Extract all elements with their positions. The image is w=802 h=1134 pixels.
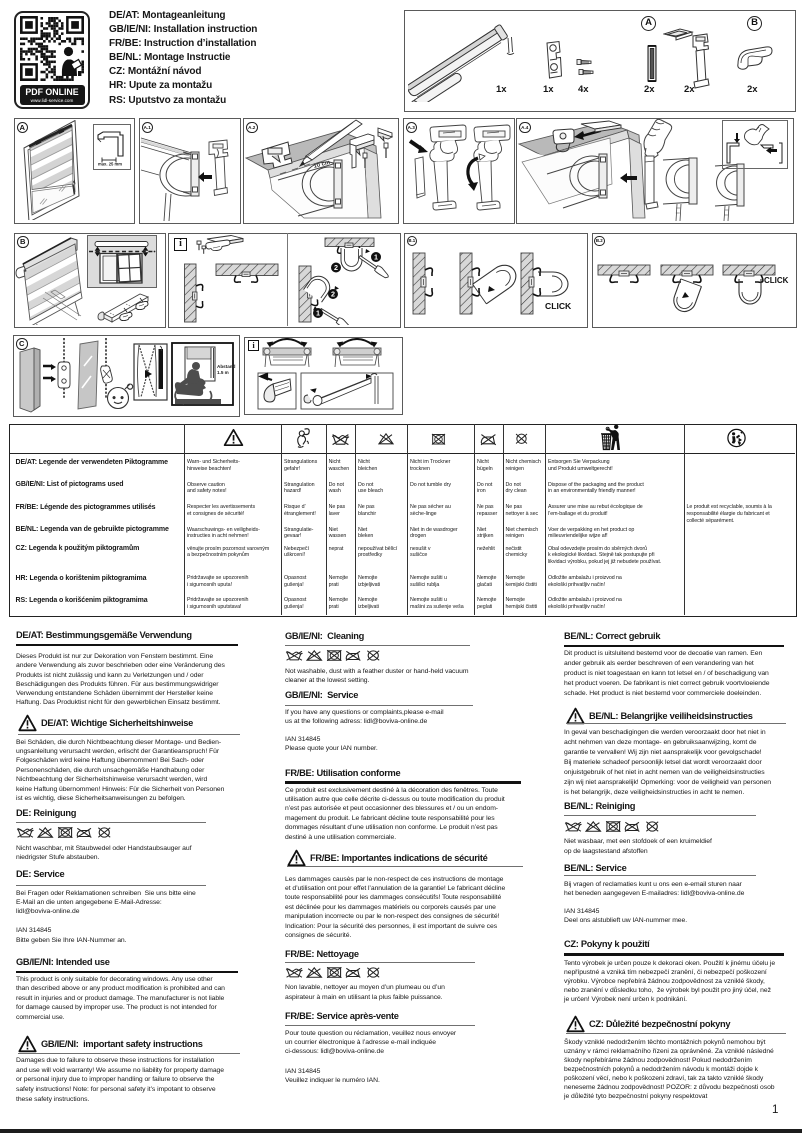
svg-text:CLICK: CLICK xyxy=(545,301,572,311)
svg-text:1: 1 xyxy=(316,309,320,318)
svg-text:2: 2 xyxy=(331,290,335,299)
svg-text:Abstand: Abstand xyxy=(217,364,236,369)
svg-text:CLICK: CLICK xyxy=(764,276,789,285)
svg-text:1: 1 xyxy=(374,253,378,262)
svg-text:1.5 m: 1.5 m xyxy=(217,370,229,375)
svg-text:max. 25 mm: max. 25 mm xyxy=(98,162,122,167)
svg-text:2: 2 xyxy=(334,263,338,272)
